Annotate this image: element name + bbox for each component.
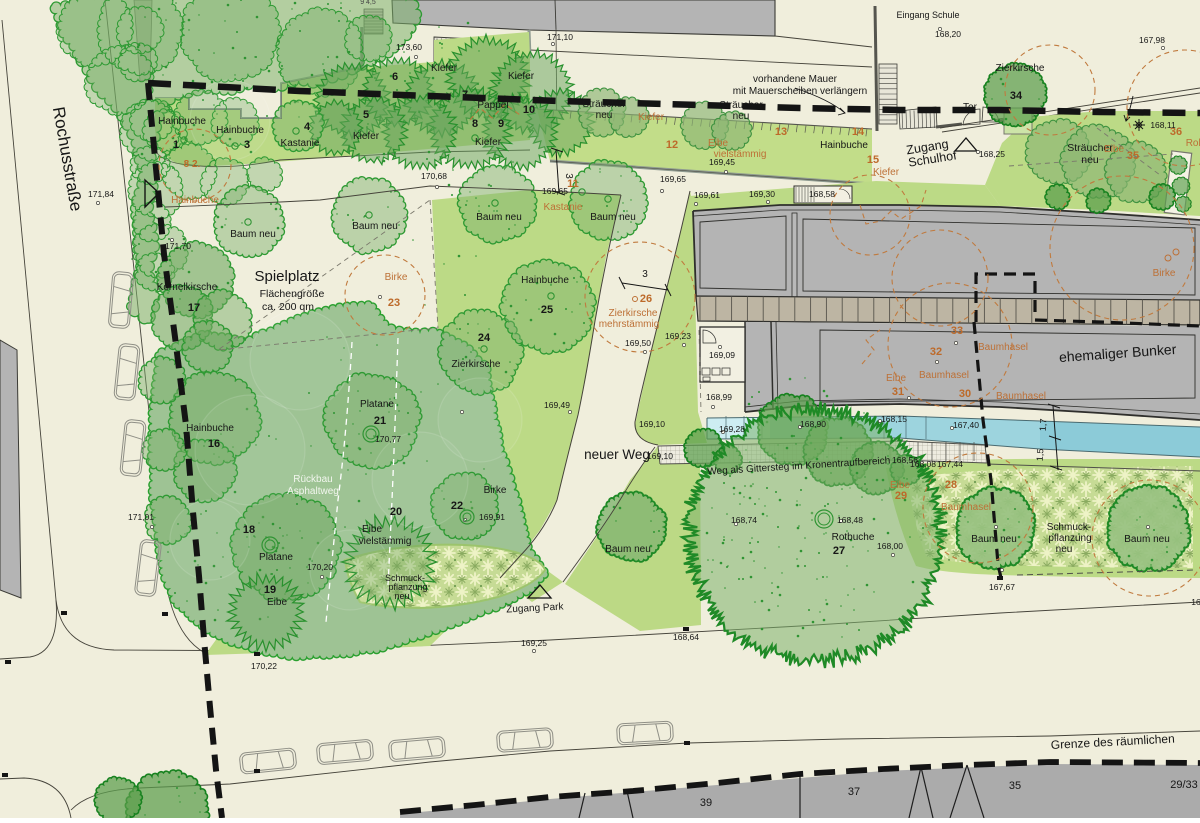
svg-text:1,7: 1,7 xyxy=(1038,418,1049,431)
svg-text:Baumhasel: Baumhasel xyxy=(919,370,969,381)
svg-text:168,74: 168,74 xyxy=(731,515,757,525)
svg-text:33: 33 xyxy=(951,325,963,337)
svg-text:mit Mauerscheiben verlängern: mit Mauerscheiben verlängern xyxy=(733,86,868,97)
svg-text:Birke: Birke xyxy=(385,272,408,283)
svg-text:Pappel: Pappel xyxy=(477,100,508,111)
svg-text:Birke: Birke xyxy=(1153,268,1176,279)
svg-text:26: 26 xyxy=(640,293,652,305)
svg-text:Hainbuche: Hainbuche xyxy=(171,195,219,206)
svg-text:167,40: 167,40 xyxy=(953,420,979,430)
svg-text:169,91: 169,91 xyxy=(479,512,505,522)
svg-text:Eingang Schule: Eingang Schule xyxy=(896,10,959,20)
svg-text:Asphaltweg: Asphaltweg xyxy=(287,486,339,497)
svg-text:Kiefer: Kiefer xyxy=(431,63,458,74)
svg-text:31: 31 xyxy=(892,386,904,398)
svg-text:37: 37 xyxy=(848,786,860,798)
svg-text:Baum neu: Baum neu xyxy=(1124,534,1170,545)
svg-text:9 4,5: 9 4,5 xyxy=(360,0,376,6)
svg-text:29: 29 xyxy=(895,490,907,502)
svg-text:169,61: 169,61 xyxy=(694,190,720,200)
svg-text:mehrstämmig: mehrstämmig xyxy=(599,319,660,330)
svg-text:173,60: 173,60 xyxy=(396,42,422,52)
svg-text:16: 16 xyxy=(208,438,220,450)
svg-text:vorhandene Mauer: vorhandene Mauer xyxy=(753,74,838,85)
svg-text:1,5: 1,5 xyxy=(1035,448,1046,461)
svg-text:171,70: 171,70 xyxy=(165,241,191,251)
svg-text:169,65: 169,65 xyxy=(542,186,568,196)
svg-text:Eibe: Eibe xyxy=(708,138,728,149)
svg-text:169,10: 169,10 xyxy=(647,451,673,461)
svg-text:Baum neu: Baum neu xyxy=(590,212,636,223)
svg-text:29/33: 29/33 xyxy=(1170,779,1198,791)
svg-text:170,20: 170,20 xyxy=(307,562,333,572)
svg-text:vielstämmig: vielstämmig xyxy=(359,536,412,547)
svg-text:168,25: 168,25 xyxy=(979,149,1005,159)
svg-text:169,65: 169,65 xyxy=(660,174,686,184)
svg-text:171,01: 171,01 xyxy=(128,512,154,522)
svg-text:Baum neu: Baum neu xyxy=(476,212,522,223)
svg-text:Kornelkirsche: Kornelkirsche xyxy=(157,282,218,293)
svg-text:neu: neu xyxy=(596,110,613,121)
svg-text:Platane: Platane xyxy=(259,552,293,563)
svg-text:Hainbuche: Hainbuche xyxy=(216,125,264,136)
svg-text:Birke: Birke xyxy=(484,485,507,496)
svg-text:Baum neu: Baum neu xyxy=(230,229,276,240)
svg-text:169,09: 169,09 xyxy=(709,350,735,360)
svg-text:168,15: 168,15 xyxy=(881,414,907,424)
svg-text:167,98: 167,98 xyxy=(1139,35,1165,45)
svg-text:Eibe: Eibe xyxy=(1104,144,1124,155)
svg-text:Hainbuche: Hainbuche xyxy=(820,140,868,151)
svg-text:5: 5 xyxy=(363,109,369,121)
svg-text:Hainbuche: Hainbuche xyxy=(186,423,234,434)
svg-text:1: 1 xyxy=(173,139,179,151)
svg-text:171,10: 171,10 xyxy=(547,32,573,42)
svg-text:169,25: 169,25 xyxy=(521,638,547,648)
svg-text:25: 25 xyxy=(541,304,553,316)
svg-text:Zierkirsche: Zierkirsche xyxy=(996,63,1045,74)
svg-text:3: 3 xyxy=(642,269,648,280)
svg-text:35: 35 xyxy=(1127,150,1139,162)
svg-text:3: 3 xyxy=(244,139,250,151)
svg-text:Kiefer: Kiefer xyxy=(475,137,502,148)
svg-text:neuer Weg: neuer Weg xyxy=(584,447,650,462)
svg-text:neu: neu xyxy=(394,591,409,601)
svg-text:neu: neu xyxy=(733,111,750,122)
svg-text:Baum neu: Baum neu xyxy=(605,544,651,555)
svg-text:Kiefer: Kiefer xyxy=(638,112,665,123)
svg-text:Spielplatz: Spielplatz xyxy=(254,268,319,285)
svg-text:Tor: Tor xyxy=(963,102,978,113)
svg-text:11: 11 xyxy=(567,178,579,190)
svg-text:Baum neu: Baum neu xyxy=(352,221,398,232)
svg-text:167,67: 167,67 xyxy=(989,582,1015,592)
svg-text:168,58: 168,58 xyxy=(809,189,835,199)
svg-text:168,90: 168,90 xyxy=(800,419,826,429)
svg-text:Kiefer: Kiefer xyxy=(353,131,380,142)
svg-text:15: 15 xyxy=(867,154,879,166)
svg-text:168,99: 168,99 xyxy=(706,392,732,402)
svg-text:Eibe: Eibe xyxy=(886,373,906,384)
svg-text:20: 20 xyxy=(390,506,402,518)
svg-text:170,68: 170,68 xyxy=(421,171,447,181)
svg-text:170,77: 170,77 xyxy=(375,434,401,444)
svg-text:Hainbuche: Hainbuche xyxy=(158,116,206,127)
svg-text:Robi: Robi xyxy=(1186,138,1200,149)
svg-text:168,48: 168,48 xyxy=(837,515,863,525)
svg-text:Eibe: Eibe xyxy=(267,597,287,608)
svg-text:168,64: 168,64 xyxy=(673,632,699,642)
svg-text:24: 24 xyxy=(478,332,491,344)
svg-text:Kiefer: Kiefer xyxy=(873,167,900,178)
svg-text:169,23: 169,23 xyxy=(665,331,691,341)
svg-text:171,84: 171,84 xyxy=(88,189,114,199)
svg-text:Sträucher: Sträucher xyxy=(719,100,763,111)
svg-text:22: 22 xyxy=(451,500,463,512)
svg-text:Flächengröße: Flächengröße xyxy=(260,288,325,300)
svg-text:Eibe: Eibe xyxy=(362,524,382,535)
svg-text:7: 7 xyxy=(462,89,468,101)
svg-text:Baumhasel: Baumhasel xyxy=(978,342,1028,353)
svg-text:169,30: 169,30 xyxy=(749,189,775,199)
svg-text:167,44: 167,44 xyxy=(937,459,963,469)
svg-text:169,49: 169,49 xyxy=(544,400,570,410)
svg-text:Baumhasel: Baumhasel xyxy=(996,391,1046,402)
svg-text:168,11: 168,11 xyxy=(1150,120,1176,130)
svg-text:pflanzung: pflanzung xyxy=(1048,533,1091,544)
svg-text:168,00: 168,00 xyxy=(877,541,903,551)
svg-text:28: 28 xyxy=(945,479,957,491)
svg-text:39: 39 xyxy=(700,797,712,809)
svg-text:Rotbuche: Rotbuche xyxy=(832,532,875,543)
svg-text:Schmuck-: Schmuck- xyxy=(1047,522,1091,533)
svg-text:18: 18 xyxy=(243,524,255,536)
svg-text:21: 21 xyxy=(374,415,386,427)
svg-text:Kastanie: Kastanie xyxy=(281,138,320,149)
svg-text:169,50: 169,50 xyxy=(625,338,651,348)
svg-text:8 2.: 8 2. xyxy=(184,159,201,170)
svg-text:4: 4 xyxy=(304,121,311,133)
svg-text:35: 35 xyxy=(1009,780,1021,792)
svg-text:17: 17 xyxy=(188,302,200,314)
svg-text:Kastanie: Kastanie xyxy=(544,202,583,213)
svg-text:12: 12 xyxy=(666,139,678,151)
svg-text:Kiefer: Kiefer xyxy=(508,71,535,82)
svg-text:169,45: 169,45 xyxy=(709,157,735,167)
svg-text:168,20: 168,20 xyxy=(935,29,961,39)
svg-text:170,22: 170,22 xyxy=(251,661,277,671)
svg-text:Zierkirsche: Zierkirsche xyxy=(609,308,658,319)
svg-text:Platane: Platane xyxy=(360,399,394,410)
svg-text:neu: neu xyxy=(1081,154,1099,166)
svg-text:Zierkirsche: Zierkirsche xyxy=(452,359,501,370)
svg-text:9: 9 xyxy=(498,118,504,130)
svg-text:169,28: 169,28 xyxy=(719,424,745,434)
svg-text:34: 34 xyxy=(1010,90,1023,102)
svg-text:8: 8 xyxy=(472,118,478,130)
svg-text:19: 19 xyxy=(264,584,276,596)
svg-text:Rückbau: Rückbau xyxy=(293,474,332,485)
svg-text:23: 23 xyxy=(388,297,400,309)
svg-text:16: 16 xyxy=(1191,597,1200,607)
svg-text:Baum neu: Baum neu xyxy=(971,534,1017,545)
svg-text:27: 27 xyxy=(833,545,845,557)
svg-text:168,08: 168,08 xyxy=(910,459,936,469)
svg-text:30: 30 xyxy=(959,388,971,400)
svg-text:14: 14 xyxy=(852,126,865,138)
svg-text:169,10: 169,10 xyxy=(639,419,665,429)
svg-text:ca. 200 qm: ca. 200 qm xyxy=(262,301,314,313)
svg-text:Baumhasel: Baumhasel xyxy=(941,502,991,513)
svg-text:32: 32 xyxy=(930,346,942,358)
svg-text:Sträucher: Sträucher xyxy=(582,99,626,110)
svg-text:neu: neu xyxy=(1056,544,1073,555)
svg-text:13: 13 xyxy=(775,126,787,138)
svg-text:6: 6 xyxy=(392,71,398,83)
svg-text:10: 10 xyxy=(523,104,535,116)
svg-text:Hainbuche: Hainbuche xyxy=(521,275,569,286)
